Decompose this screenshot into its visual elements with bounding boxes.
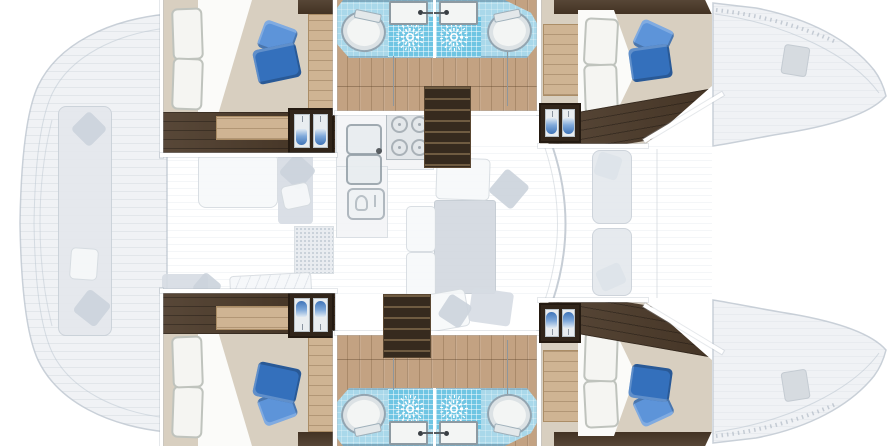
folded-sheet xyxy=(198,0,252,124)
bathroom-divider-wall xyxy=(433,388,436,446)
hanging-clothes-icon xyxy=(315,301,326,317)
cabin-desk xyxy=(543,24,580,96)
cabin-joinery xyxy=(298,0,335,14)
floor-plan-canvas xyxy=(0,0,890,446)
hull-wall xyxy=(160,288,163,446)
hull-wall xyxy=(537,0,541,115)
wardrobe-slot xyxy=(545,109,559,137)
hanging-clothes-icon xyxy=(563,118,574,134)
hanging-clothes-icon xyxy=(315,129,326,145)
anchor-locker-hatch xyxy=(781,44,810,77)
bathroom-door-track xyxy=(393,56,394,106)
washbasin-icon xyxy=(389,421,428,445)
wardrobe-icon xyxy=(539,303,581,343)
cabin-joinery xyxy=(554,432,712,446)
wardrobe-slot xyxy=(562,309,576,337)
bedside-shelf xyxy=(308,334,335,432)
hull-wall xyxy=(538,298,648,302)
bed-pillow-icon xyxy=(171,385,204,438)
anchor-locker-hatch xyxy=(781,369,810,402)
bed-pillow-icon xyxy=(583,17,619,67)
washbasin-icon xyxy=(439,1,478,25)
wardrobe-slot xyxy=(313,114,329,148)
floor-seam xyxy=(335,359,541,360)
blue-pillow-icon xyxy=(628,363,673,402)
blue-pillow-icon xyxy=(628,43,673,82)
spout-icon xyxy=(434,12,444,14)
wardrobe-slot xyxy=(562,109,576,137)
cabin-joinery xyxy=(554,0,712,14)
bed-pillow-icon xyxy=(583,379,619,429)
hull-wall xyxy=(333,331,337,446)
hanging-clothes-icon xyxy=(296,301,307,317)
hull-wall xyxy=(537,331,541,446)
bed-pillow-icon xyxy=(171,335,204,388)
starboard-hull xyxy=(160,246,716,446)
spout-icon xyxy=(434,432,444,434)
companionway-stairs xyxy=(424,86,471,168)
wardrobe-slot xyxy=(294,114,310,148)
tap-icon xyxy=(444,10,449,15)
bed-pillow-icon xyxy=(171,7,204,60)
washbasin-icon xyxy=(439,421,478,445)
hull-wall xyxy=(538,144,648,148)
bed-step xyxy=(216,116,298,140)
bedside-shelf xyxy=(308,14,335,112)
wardrobe-icon xyxy=(288,292,334,338)
hanging-clothes-icon xyxy=(296,129,307,145)
shower-rose-icon xyxy=(437,20,471,54)
shower-rose-icon xyxy=(393,20,427,54)
bathroom-door-track xyxy=(507,340,508,394)
spout-icon xyxy=(423,12,433,14)
hanging-clothes-icon xyxy=(563,312,574,328)
hull-corridor xyxy=(335,332,541,446)
wardrobe-slot xyxy=(294,298,310,332)
wardrobe-icon xyxy=(288,108,334,154)
hanging-clothes-icon xyxy=(546,118,557,134)
blue-pillow-icon xyxy=(252,42,302,85)
wardrobe-icon xyxy=(539,103,581,143)
aft-cabin xyxy=(162,290,335,446)
hanging-clothes-icon xyxy=(546,312,557,328)
bathroom-divider-wall xyxy=(433,0,436,58)
companionway-stairs xyxy=(383,294,431,358)
folded-sheet xyxy=(198,322,252,446)
tap-icon xyxy=(444,431,449,436)
hull-wall xyxy=(333,0,337,115)
wardrobe-slot xyxy=(545,309,559,337)
hull-wall xyxy=(160,0,163,158)
bed-pillow-icon xyxy=(171,57,204,110)
spout-icon xyxy=(423,432,433,434)
hull-wall xyxy=(335,331,541,335)
cabin-desk xyxy=(543,350,580,422)
washbasin-icon xyxy=(389,1,428,25)
bathroom-door-track xyxy=(507,52,508,106)
cockpit-pillow-icon xyxy=(69,247,99,281)
cabin-joinery xyxy=(298,432,335,446)
hull-wall xyxy=(160,153,337,157)
aft-cabin xyxy=(162,0,335,156)
hull-wall xyxy=(160,289,337,293)
wardrobe-slot xyxy=(313,298,329,332)
bed-step xyxy=(216,306,298,330)
